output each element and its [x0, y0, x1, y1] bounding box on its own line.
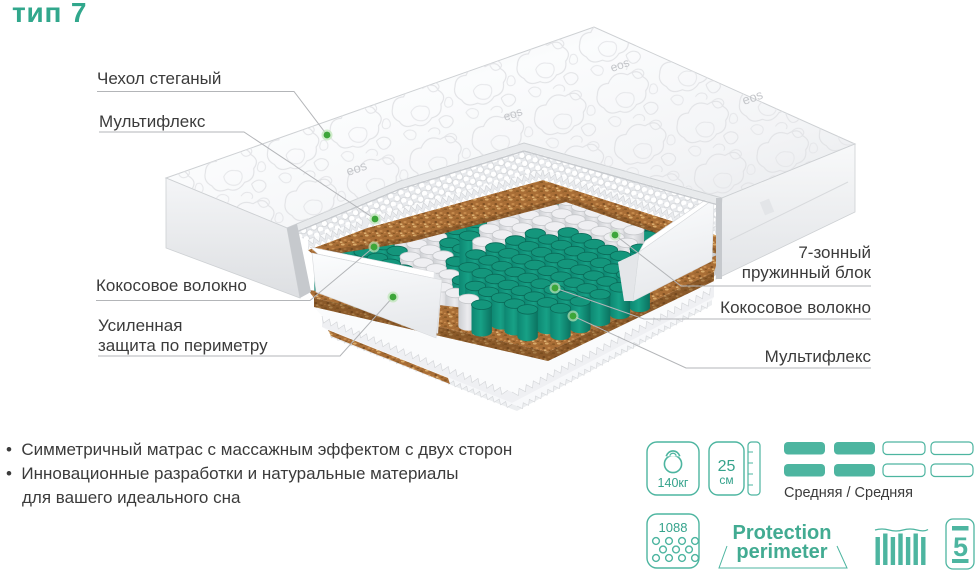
svg-text:140кг: 140кг [658, 476, 689, 490]
svg-text:5: 5 [953, 532, 968, 562]
svg-text:см: см [719, 473, 733, 487]
svg-text:perimeter: perimeter [736, 541, 827, 563]
svg-text:1088: 1088 [659, 520, 688, 535]
